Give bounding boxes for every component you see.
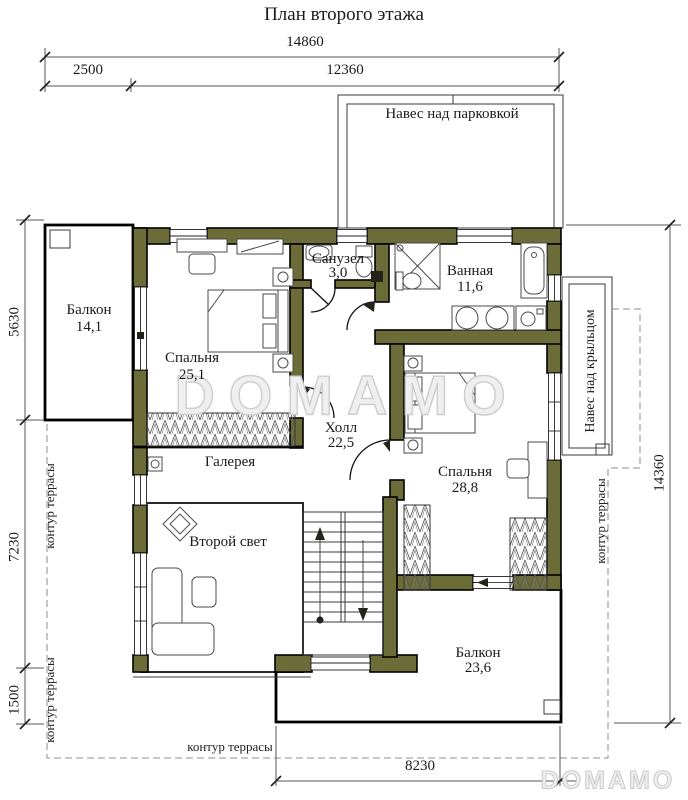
- page-title: План второго этажа: [264, 5, 424, 25]
- room-hall-area: 22,5: [328, 436, 354, 452]
- room-bedroom-left-area: 25,1: [179, 368, 205, 384]
- terrace-label-left-upper: контур террасы: [42, 463, 58, 549]
- terrace-label-left-lower: контур террасы: [42, 657, 58, 743]
- room-bathroom-name: Ванная: [447, 264, 493, 280]
- floor-plan-page: DOMAMO План второго этажа 14860 2500 123…: [0, 0, 688, 800]
- balcony-left-corner-detail: [50, 230, 70, 248]
- room-bedroom-right-name: Спальня: [438, 465, 492, 481]
- dim-left-lower: 1500: [7, 685, 24, 715]
- dim-top-right: 12360: [326, 63, 364, 79]
- dim-left-upper: 5630: [7, 307, 24, 337]
- room-bedroom-left-name: Спальня: [165, 351, 219, 367]
- parking-canopy-label: Навес над парковкой: [385, 107, 518, 123]
- dim-right-total: 14360: [652, 454, 669, 492]
- terrace-label-right: контур террасы: [593, 478, 609, 564]
- dim-top-left: 2500: [73, 63, 103, 79]
- terrace-label-bottom: контур террасы: [187, 740, 273, 754]
- room-second-light-name: Второй свет: [189, 535, 267, 551]
- room-bedroom-right-area: 28,8: [452, 481, 478, 497]
- gallery-detail: [148, 457, 162, 471]
- room-balcony-left-area: 14,1: [76, 320, 102, 336]
- room-bathroom-area: 11,6: [457, 280, 483, 296]
- room-wc-area: 3,0: [329, 266, 348, 282]
- stairs: [303, 512, 383, 655]
- dim-left-middle: 7230: [7, 532, 24, 562]
- dim-bottom: 8230: [405, 759, 435, 775]
- porch-canopy-label: Навес над крыльцом: [583, 309, 599, 432]
- balcony-bottom-corner-detail: [544, 700, 560, 714]
- watermark-logo: DOMAMO: [541, 767, 676, 796]
- furniture-second-light: [152, 507, 216, 655]
- room-gallery-name: Галерея: [205, 455, 255, 471]
- room-balcony-left-name: Балкон: [67, 303, 112, 319]
- dim-top-total: 14860: [286, 35, 324, 51]
- watermark-center: DOMAMO: [174, 363, 519, 428]
- room-balcony-bottom-area: 23,6: [465, 661, 491, 677]
